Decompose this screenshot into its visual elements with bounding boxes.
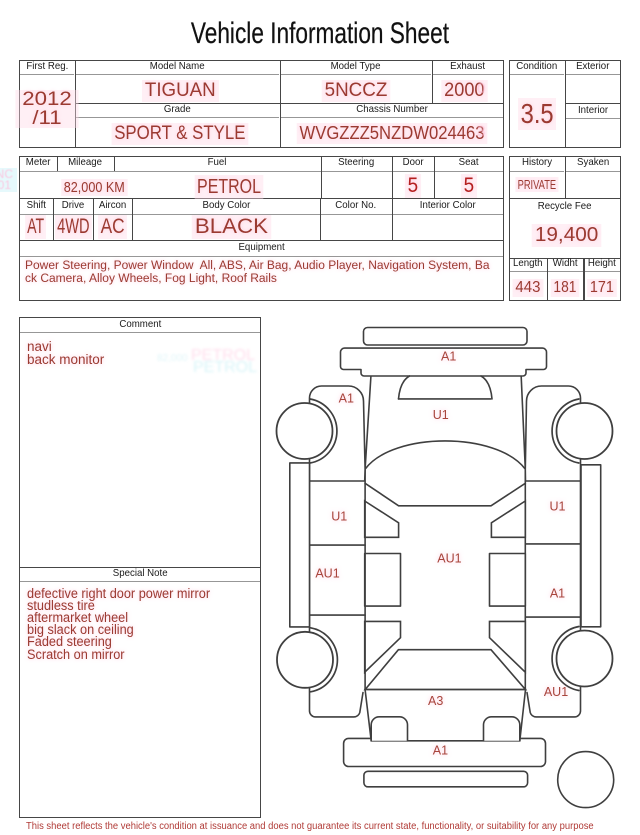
svg-text:U1: U1: [331, 510, 347, 524]
svg-text:A1: A1: [433, 744, 448, 758]
svg-text:A3: A3: [428, 694, 443, 708]
svg-text:A1: A1: [550, 587, 565, 601]
svg-text:A1: A1: [339, 392, 354, 406]
svg-text:U1: U1: [433, 408, 449, 422]
svg-text:AU1: AU1: [437, 552, 461, 566]
svg-text:A1: A1: [441, 350, 456, 364]
svg-text:AU1: AU1: [315, 567, 339, 581]
svg-text:U1: U1: [550, 500, 566, 514]
svg-text:AU1: AU1: [544, 685, 568, 699]
